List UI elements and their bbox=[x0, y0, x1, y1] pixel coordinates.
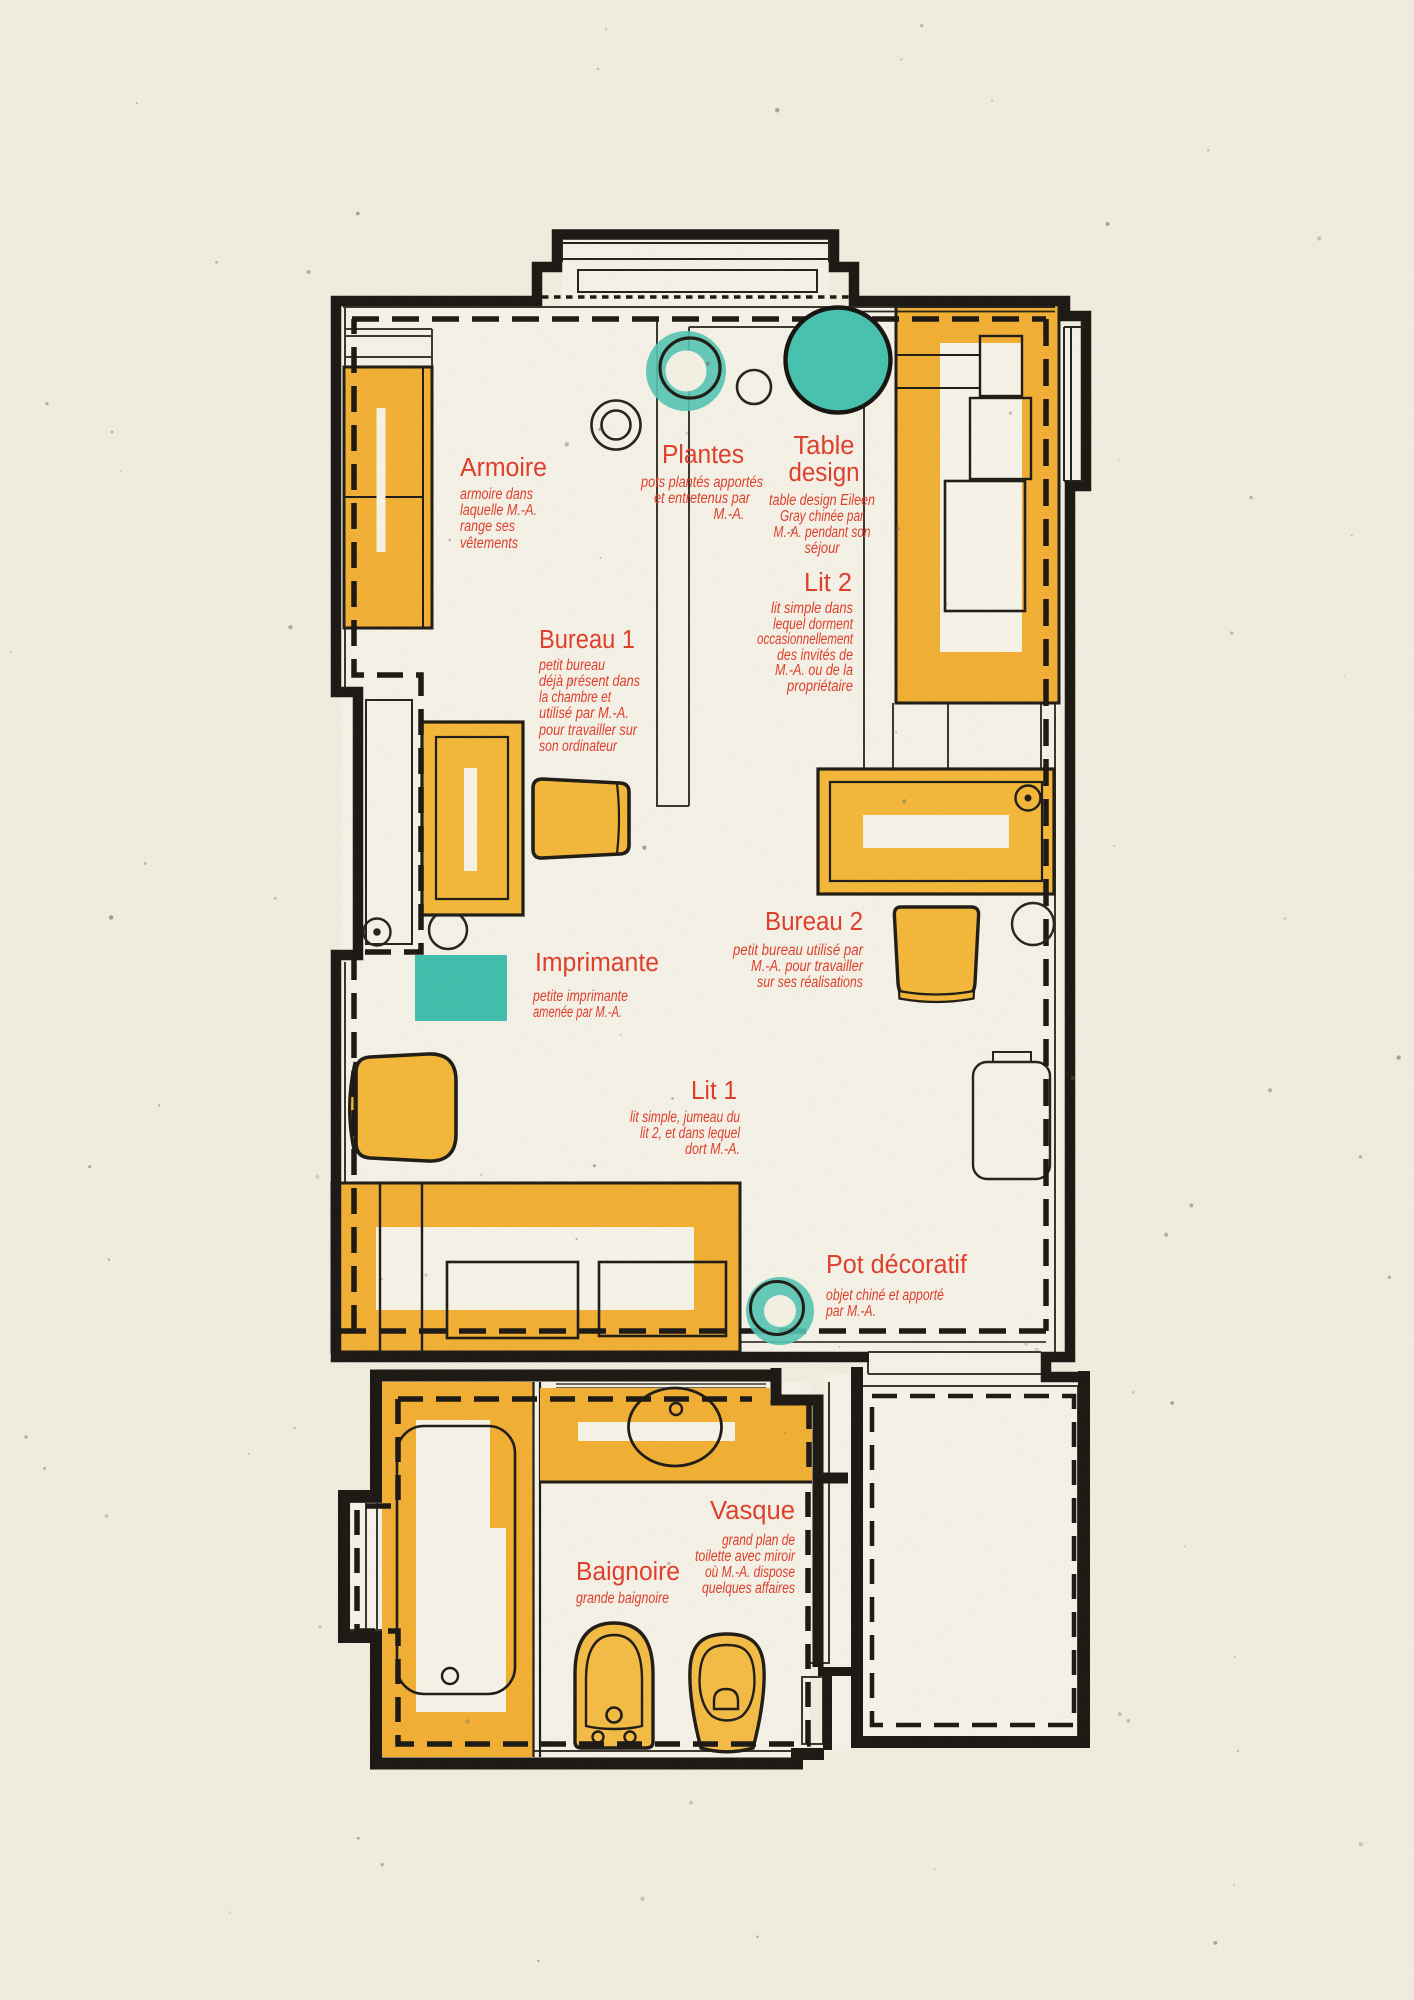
svg-text:M.-A. ou de la: M.-A. ou de la bbox=[775, 662, 853, 679]
svg-text:déjà présent dans: déjà présent dans bbox=[539, 673, 640, 690]
svg-text:Bureau 2: Bureau 2 bbox=[765, 908, 863, 936]
svg-text:séjour: séjour bbox=[805, 540, 841, 557]
svg-text:laquelle M.-A.: laquelle M.-A. bbox=[460, 502, 537, 519]
svg-text:la chambre et: la chambre et bbox=[539, 689, 612, 706]
svg-text:Plantes: Plantes bbox=[662, 441, 744, 469]
svg-text:grande baignoire: grande baignoire bbox=[576, 1590, 669, 1607]
svg-text:propriétaire: propriétaire bbox=[786, 678, 853, 695]
svg-text:grand plan de: grand plan de bbox=[722, 1532, 795, 1549]
svg-text:son ordinateur: son ordinateur bbox=[539, 738, 618, 755]
svg-text:M.-A. pendant son: M.-A. pendant son bbox=[774, 524, 871, 541]
svg-text:par M.-A.: par M.-A. bbox=[825, 1303, 876, 1320]
svg-text:et entretenus par: et entretenus par bbox=[654, 490, 751, 507]
svg-text:objet chiné et apporté: objet chiné et apporté bbox=[826, 1287, 944, 1304]
svg-text:M.-A.: M.-A. bbox=[714, 506, 745, 523]
svg-text:Table: Table bbox=[794, 432, 855, 460]
svg-text:M.-A. pour travailler: M.-A. pour travailler bbox=[751, 958, 864, 975]
svg-text:table design Eileen: table design Eileen bbox=[769, 492, 875, 509]
svg-text:Vasque: Vasque bbox=[710, 1497, 795, 1525]
svg-text:pour travailler sur: pour travailler sur bbox=[538, 722, 638, 739]
svg-text:design: design bbox=[789, 459, 860, 487]
svg-text:vêtements: vêtements bbox=[460, 535, 518, 552]
svg-text:pots plantés apportés: pots plantés apportés bbox=[640, 474, 763, 491]
svg-text:range ses: range ses bbox=[460, 518, 515, 535]
svg-text:petit bureau utilisé par: petit bureau utilisé par bbox=[732, 942, 864, 959]
svg-text:Gray chinée par: Gray chinée par bbox=[780, 508, 865, 525]
svg-text:Pot décoratif: Pot décoratif bbox=[826, 1251, 968, 1279]
svg-text:sur ses réalisations: sur ses réalisations bbox=[757, 974, 863, 991]
svg-text:Armoire: Armoire bbox=[460, 454, 547, 482]
svg-text:toilette avec miroir: toilette avec miroir bbox=[695, 1548, 796, 1565]
svg-text:armoire dans: armoire dans bbox=[460, 486, 533, 503]
svg-text:où M.-A. dispose: où M.-A. dispose bbox=[705, 1564, 795, 1581]
svg-text:quelques affaires: quelques affaires bbox=[702, 1580, 795, 1597]
svg-text:occasionnellement: occasionnellement bbox=[757, 631, 854, 648]
svg-text:Baignoire: Baignoire bbox=[576, 1558, 680, 1586]
svg-text:utilisé par M.-A.: utilisé par M.-A. bbox=[539, 705, 629, 722]
svg-text:lit 2, et dans lequel: lit 2, et dans lequel bbox=[640, 1125, 740, 1142]
svg-text:Bureau 1: Bureau 1 bbox=[539, 626, 635, 654]
svg-text:lit simple, jumeau du: lit simple, jumeau du bbox=[630, 1109, 740, 1126]
svg-text:amenée par M.-A.: amenée par M.-A. bbox=[533, 1004, 622, 1021]
svg-text:Lit 1: Lit 1 bbox=[691, 1077, 737, 1105]
svg-text:Imprimante: Imprimante bbox=[535, 949, 659, 977]
svg-text:lit simple dans: lit simple dans bbox=[771, 600, 853, 617]
svg-text:petit bureau: petit bureau bbox=[538, 657, 605, 674]
svg-text:dort M.-A.: dort M.-A. bbox=[685, 1141, 740, 1158]
svg-text:Lit 2: Lit 2 bbox=[804, 569, 852, 597]
svg-text:petite imprimante: petite imprimante bbox=[532, 988, 628, 1005]
